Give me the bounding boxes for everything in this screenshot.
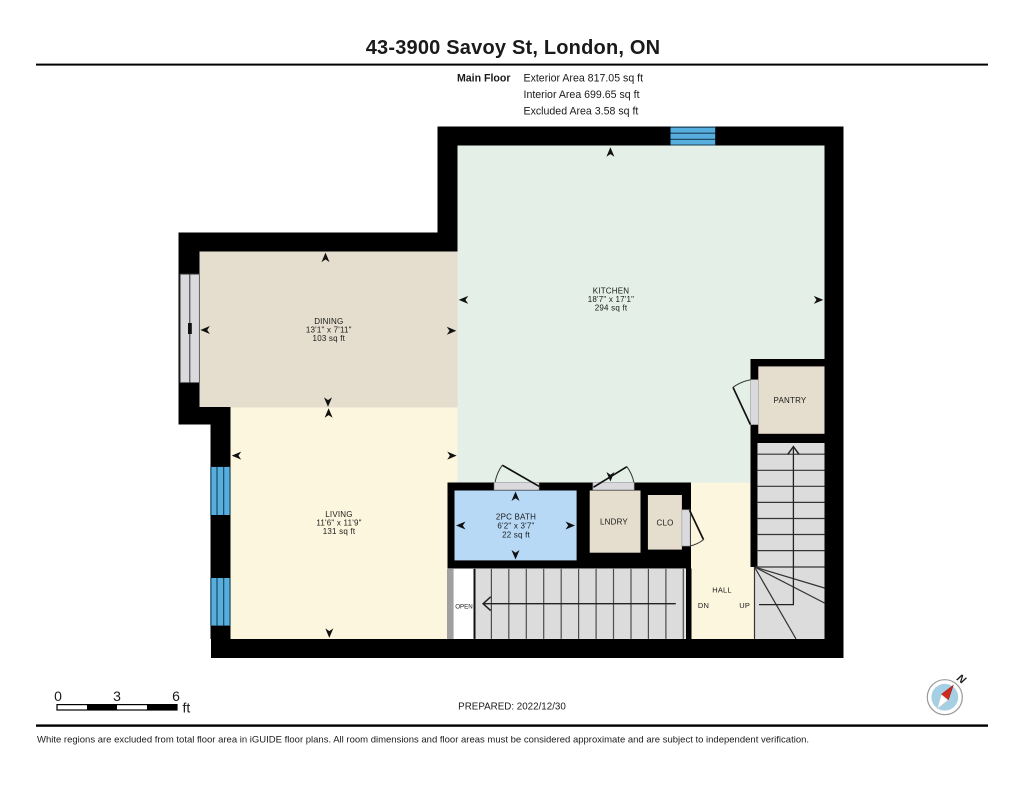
svg-text:UP: UP <box>739 601 750 610</box>
svg-text:ft: ft <box>183 700 191 716</box>
svg-text:6: 6 <box>172 688 180 704</box>
svg-text:43-3900 Savoy St, London, ON: 43-3900 Savoy St, London, ON <box>366 37 661 59</box>
svg-text:Excluded Area 3.58 sq ft: Excluded Area 3.58 sq ft <box>524 105 639 117</box>
svg-text:2PC BATH: 2PC BATH <box>496 512 536 521</box>
svg-text:PANTRY: PANTRY <box>774 396 807 405</box>
svg-text:0: 0 <box>54 688 62 704</box>
svg-text:LNDRY: LNDRY <box>600 518 628 527</box>
svg-text:294 sq ft: 294 sq ft <box>595 304 628 313</box>
svg-text:White regions are excluded fro: White regions are excluded from total fl… <box>37 735 809 746</box>
svg-text:3: 3 <box>113 688 121 704</box>
svg-text:HALL: HALL <box>712 586 732 595</box>
svg-text:131 sq ft: 131 sq ft <box>323 527 356 536</box>
svg-text:PREPARED: 2022/12/30: PREPARED: 2022/12/30 <box>458 701 566 712</box>
svg-text:103 sq ft: 103 sq ft <box>313 334 346 343</box>
svg-text:Exterior Area 817.05 sq ft: Exterior Area 817.05 sq ft <box>524 72 644 84</box>
svg-text:OPEN: OPEN <box>455 604 473 611</box>
svg-text:6'2" x 3'7": 6'2" x 3'7" <box>497 521 534 530</box>
svg-text:DN: DN <box>698 601 709 610</box>
svg-text:Main Floor: Main Floor <box>457 72 511 84</box>
svg-text:22 sq ft: 22 sq ft <box>502 530 530 539</box>
svg-text:Interior Area 699.65 sq ft: Interior Area 699.65 sq ft <box>524 89 640 101</box>
svg-text:CLO: CLO <box>656 519 673 528</box>
